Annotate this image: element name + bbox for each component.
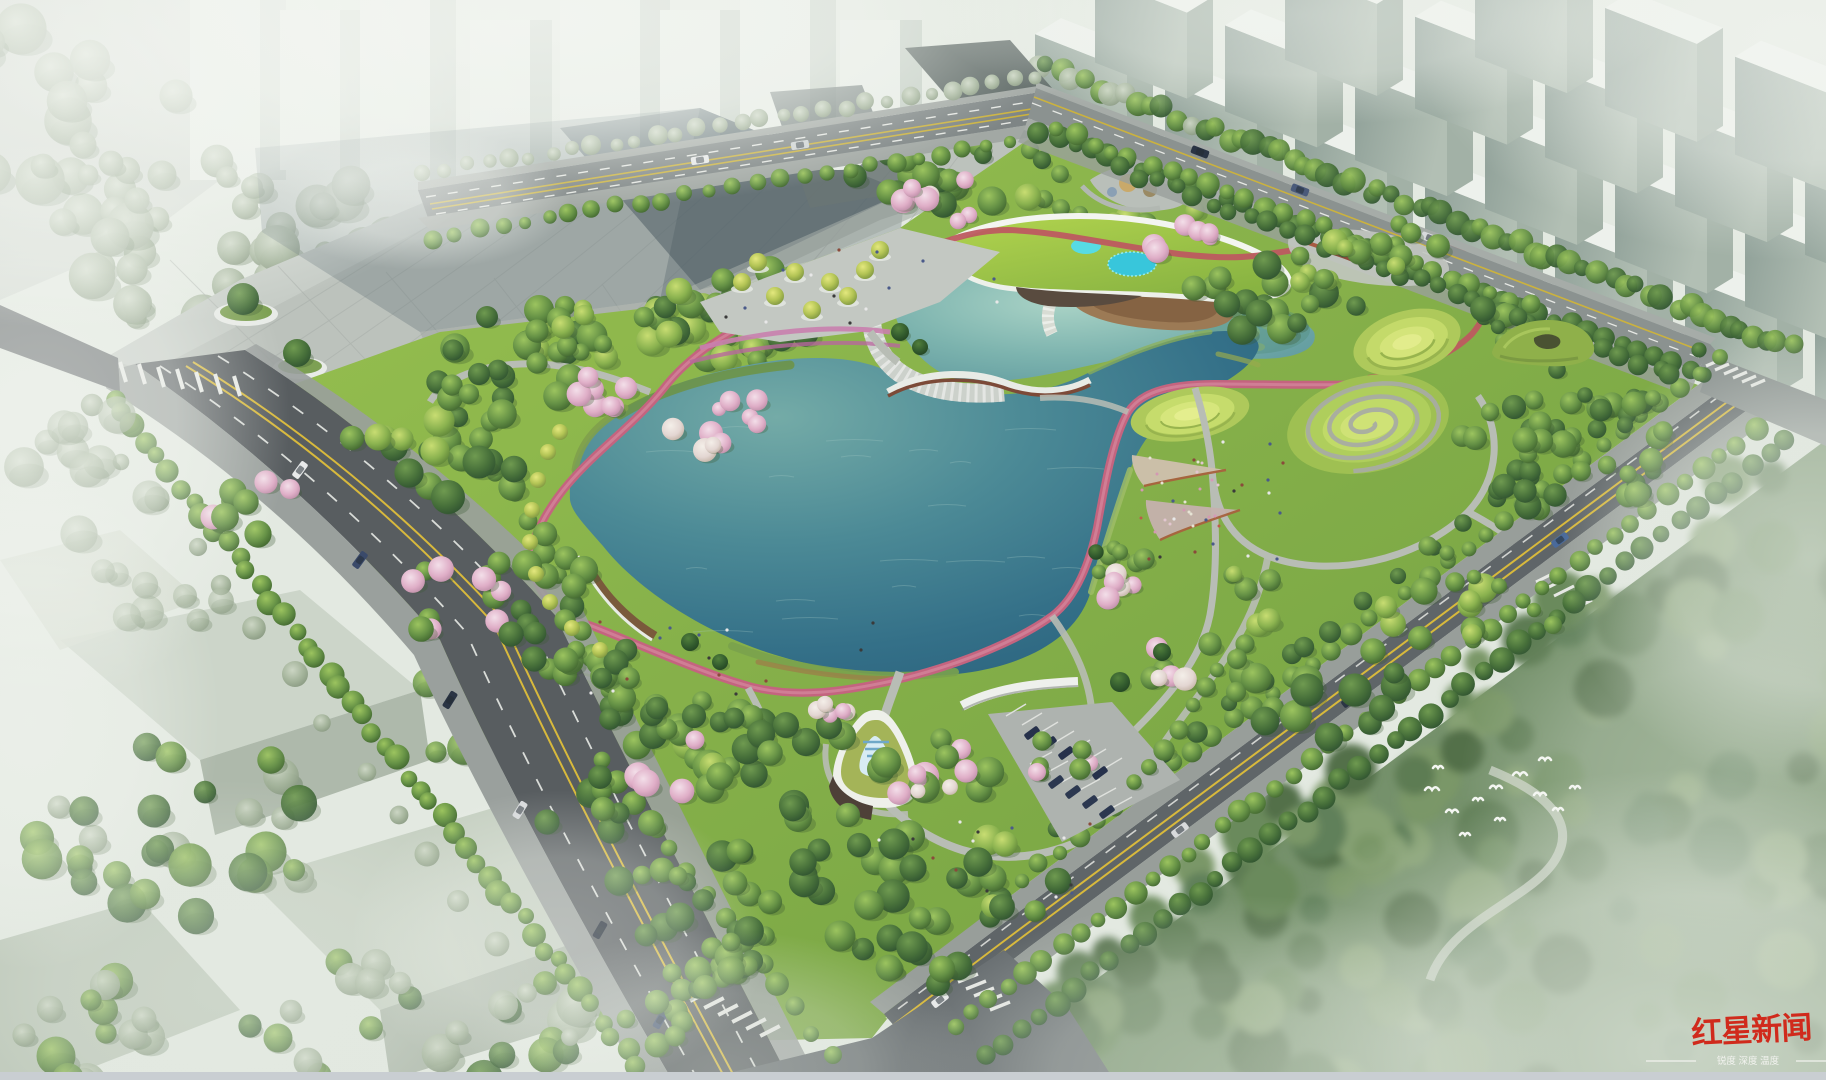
svg-text:锐度 深度 温度: 锐度 深度 温度 [1717,1055,1780,1067]
svg-text:红星新闻: 红星新闻 [1691,1010,1813,1051]
